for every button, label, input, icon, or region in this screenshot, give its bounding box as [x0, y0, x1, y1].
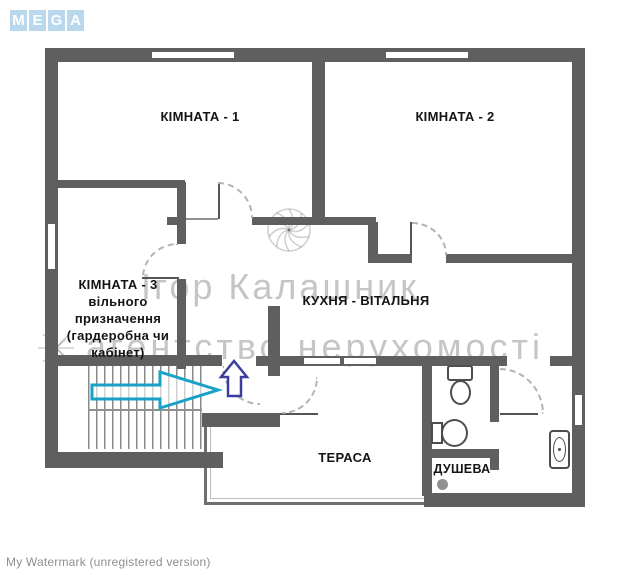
mega-logo: M E G A [10, 10, 84, 31]
floor-plan-screenshot: Ігор Калашник агентство нерухомості [0, 0, 628, 575]
window [344, 358, 376, 364]
shower-label: ДУШЕВА [432, 461, 492, 478]
terrace-label: ТЕРАСА [295, 449, 395, 466]
stairs [88, 365, 202, 449]
mega-letter: A [70, 12, 81, 29]
door-arc [222, 366, 260, 405]
mega-letter: M [12, 12, 25, 29]
watermark-swirl-icon [268, 209, 310, 251]
window [48, 224, 55, 269]
mega-logo-tile: G [48, 10, 65, 31]
stairs-landing-line [88, 409, 202, 411]
sink-bowl-fixture [441, 419, 468, 447]
wall-segment [256, 356, 270, 366]
door-arc [412, 222, 447, 255]
wall-segment [446, 254, 572, 263]
shower-drain-dot [437, 479, 448, 490]
wall-segment [572, 48, 585, 507]
wall-segment [177, 182, 186, 244]
wall-segment [550, 356, 574, 366]
wall-segment [45, 452, 223, 468]
window [152, 52, 234, 58]
door-arc [500, 368, 544, 414]
toilet-bowl-fixture [450, 380, 471, 405]
wall-segment [167, 217, 185, 225]
window [386, 52, 468, 58]
wall-segment [202, 413, 280, 427]
wall-segment [490, 358, 499, 422]
door-arc [282, 377, 318, 414]
room2-label: КІМНАТА - 2 [385, 108, 525, 125]
mega-logo-tile: A [67, 10, 84, 31]
room1-label: КІМНАТА - 1 [130, 108, 270, 125]
mega-letter: G [51, 12, 63, 29]
watermark-bottom-text: My Watermark (unregistered version) [6, 555, 211, 569]
mega-letter: E [32, 12, 42, 29]
wall-segment [424, 493, 585, 507]
toilet-tank-fixture [447, 365, 473, 381]
mega-logo-tile: M [10, 10, 27, 31]
wall-segment [45, 180, 185, 188]
wall-segment [252, 217, 376, 225]
window [575, 395, 582, 425]
door-threshold [186, 218, 218, 220]
door-arc [218, 182, 253, 218]
washing-machine-dot [558, 448, 561, 451]
wall-segment [422, 449, 499, 458]
wall-segment [368, 254, 412, 263]
kitchen-label: КУХНЯ - ВІТАЛЬНЯ [296, 292, 436, 309]
room3-label: КІМНАТА - 3 вільного призначення (гардер… [48, 276, 188, 361]
mega-logo-tile: E [29, 10, 46, 31]
wall-segment [45, 48, 585, 62]
window [304, 358, 340, 364]
wall-segment [312, 62, 325, 222]
door-arc [142, 243, 178, 278]
